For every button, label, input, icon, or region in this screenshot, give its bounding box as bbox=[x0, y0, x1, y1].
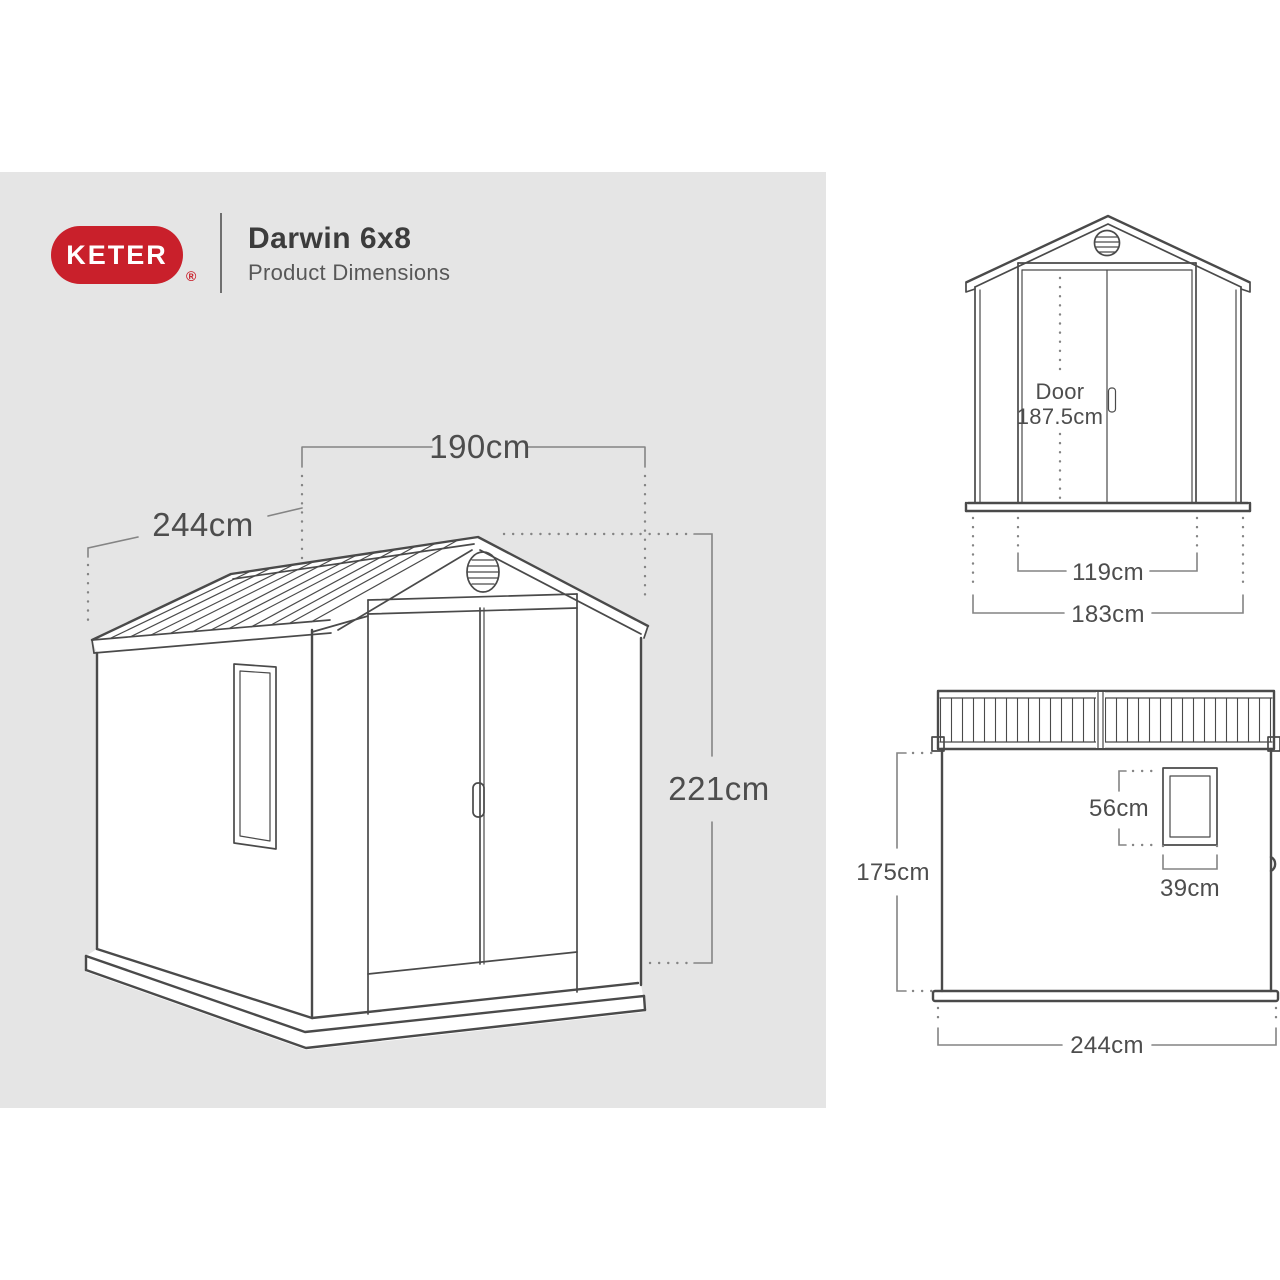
depth-dimension-label: 244cm bbox=[152, 506, 254, 543]
side-view-dimensions: 175cm 56cm 39cm 244cm bbox=[856, 753, 1276, 1059]
wall-height-dimension-label: 175cm bbox=[856, 859, 930, 886]
side-depth-dimension-label: 244cm bbox=[1070, 1032, 1144, 1059]
window-height-dimension-label: 56cm bbox=[1089, 795, 1149, 822]
product-dimensions-sheet: KETER ® Darwin 6x8 Product Dimensions bbox=[0, 0, 1280, 1280]
window-width-dimension-label: 39cm bbox=[1160, 875, 1220, 902]
perspective-view-drawing bbox=[86, 537, 648, 1050]
side-view-drawing bbox=[932, 691, 1280, 1001]
dimension-drawings: 190cm 244cm 221cm bbox=[0, 0, 1280, 1280]
door-width-dimension-label: 119cm bbox=[1072, 559, 1144, 586]
width-dimension-label: 190cm bbox=[429, 428, 531, 465]
side-window bbox=[1163, 768, 1217, 845]
overall-width-dimension-label: 183cm bbox=[1071, 601, 1145, 628]
door-handle-front bbox=[1109, 388, 1116, 412]
gable-vent-front bbox=[1095, 231, 1120, 256]
front-view-drawing bbox=[966, 216, 1250, 511]
door-height-label: 187.5cm bbox=[1017, 404, 1103, 429]
door-label: Door bbox=[1036, 379, 1085, 404]
height-dimension-label: 221cm bbox=[668, 770, 770, 807]
